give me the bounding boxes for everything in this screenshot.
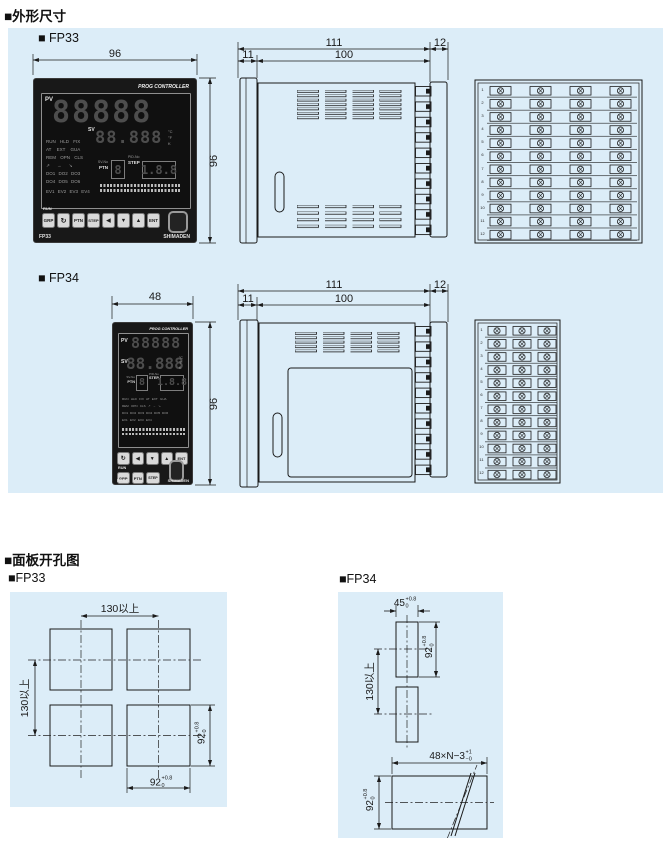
fp33-bezel-dim: 11: [242, 49, 253, 61]
vertical-pitch-dim: 130以上: [364, 662, 376, 701]
ptn-readout: 8: [136, 375, 148, 391]
break-line: [455, 773, 475, 836]
step-button: STEP: [146, 472, 160, 484]
terminal-row-number: 3: [480, 353, 483, 358]
svg-text:0: 0: [371, 796, 377, 799]
svg-text:+0.8: +0.8: [363, 789, 369, 800]
terminal-row-number: 6: [480, 392, 483, 397]
terminal-row-number: 2: [481, 100, 484, 105]
svg-text:+0.8: +0.8: [162, 776, 173, 782]
terminal-row-number: 4: [480, 366, 483, 371]
fp34-vent-top: [295, 332, 401, 354]
down-arrow-button: ▼: [117, 213, 130, 228]
svg-text:92: 92: [150, 778, 162, 789]
fp34-cutout-panel: 45 +0.8 0 92 +0.8 0 130以上: [338, 592, 503, 838]
section-title-dimensions: ■外形尺寸: [4, 5, 66, 25]
sv-readout: 88.888: [95, 130, 162, 147]
fp33-depth-total-dim: 111: [326, 37, 343, 49]
fp34-cutout-dimensions: 45 +0.8 0 92 +0.8 0 130以上: [364, 597, 440, 715]
terminal-row-number: 11: [480, 218, 485, 223]
dimensions-panel: ■ FP33 ■ FP34: [8, 28, 663, 493]
svg-text:0: 0: [162, 783, 165, 789]
fp33-vent-bottom: [297, 205, 403, 231]
terminal-row-number: 11: [479, 457, 484, 462]
unit-f: °F: [168, 136, 172, 140]
fp33-side-bezel: [240, 78, 257, 243]
fp34-side-bezel: [240, 320, 258, 487]
status-row-arrows: ↗ → ↘: [46, 164, 73, 169]
bargraph-row: [122, 428, 186, 431]
fp33-terminal-dim: 12: [434, 37, 446, 49]
fp34-terminal-grid: [485, 325, 557, 481]
terminal-row-number: 9: [481, 192, 484, 197]
terminal-row-number: 8: [481, 179, 484, 184]
left-arrow-button: ◀: [132, 452, 145, 465]
ptn-label: PTN: [86, 166, 108, 171]
status-row: AT EXT GUA: [46, 148, 80, 153]
fp34-width-dim: 48: [149, 291, 161, 303]
unit-k: K: [168, 142, 171, 146]
fp34-gang-cutout: 48×N−3 +1 −0 92 +0.8 0: [363, 750, 494, 839]
fp33-width-dim: 96: [109, 48, 121, 60]
brand-text: PROG CONTROLLER: [149, 328, 188, 332]
terminal-row-number: 1: [481, 87, 484, 92]
sv-no-label: SV-No: [86, 161, 108, 165]
terminal-row-number: 2: [480, 340, 483, 345]
fp34-bezel-dim: 11: [242, 293, 253, 305]
terminal-row-number: 1: [480, 327, 483, 332]
bargraph-row: [100, 184, 180, 187]
grp-button: GRP: [42, 213, 55, 228]
terminal-row-number: 12: [480, 231, 485, 236]
brand-text: PROG CONTROLLER: [138, 85, 189, 90]
terminal-row-number: 5: [480, 379, 483, 384]
svg-text:+0.8: +0.8: [195, 722, 201, 733]
step-readout: 1.8.8: [160, 375, 184, 391]
maker-label: SHIMADEN: [168, 479, 189, 483]
fp34-height-dim: 96: [208, 398, 220, 410]
terminal-row-number: 6: [481, 152, 484, 157]
fp34-cutout-drawing: 45 +0.8 0 92 +0.8 0 130以上: [338, 592, 503, 838]
unit-c: °C: [179, 357, 183, 361]
fp33-cutout-label: ■FP33: [8, 571, 45, 585]
pid-no-label: PID-No: [128, 156, 139, 160]
terminal-row-number: 4: [481, 126, 484, 131]
fp33-cutout-panel: 130以上 130以上 92 +0.8 0 92 +0.8 0: [10, 592, 227, 807]
fp34-front-panel: PROG CONTROLLER PV 88888 SV 88.888 °C °F…: [112, 322, 193, 485]
fp33-case-dim: 100: [335, 49, 353, 61]
fp33-display: PV 88888 RUN HLD FIX AT EXT GUA REM OPN …: [41, 93, 191, 209]
svg-text:−0: −0: [466, 757, 472, 763]
fp34-depth-total-dim: 111: [326, 279, 343, 291]
ptn-readout: 8: [111, 160, 125, 179]
svg-text:45: 45: [394, 598, 406, 609]
ent-button: ENT: [147, 213, 160, 228]
status-row: RUN HLD FIX: [46, 140, 80, 145]
fp34-side-panel: [288, 368, 412, 477]
fp34-side-view: 111 12 11 100: [238, 279, 448, 487]
status-row: EV1 EV2 EV3 EV4: [122, 419, 152, 422]
fp33-vent-top: [297, 90, 403, 120]
step-button: STEP: [87, 213, 100, 228]
model-label: FP34: [117, 479, 127, 483]
fp34-terminal-dim: 12: [434, 279, 446, 291]
svg-text:0: 0: [430, 643, 436, 646]
fp33-side-slot: [275, 172, 284, 212]
sv-label: SV: [88, 128, 95, 133]
terminal-row-number: 7: [481, 166, 484, 171]
fp33-side-view: 111 12 11 100: [238, 37, 448, 243]
maker-label: SHIMADEN: [163, 235, 190, 240]
left-arrow-button: ◀: [102, 213, 115, 228]
ptn-label: PTN: [121, 381, 135, 385]
terminal-row-number: 10: [480, 205, 485, 210]
status-row: REM OPN CLS ↗ → ↘: [122, 405, 161, 408]
sv-no-label: SV-No: [121, 376, 135, 379]
svg-text:0: 0: [202, 729, 208, 732]
status-row: REM OPN CLS: [46, 156, 83, 161]
fp34-side-slot: [273, 413, 282, 457]
fp34-case-dim: 100: [335, 293, 353, 305]
vertical-pitch-dim: 130以上: [19, 679, 31, 718]
fp33-front-panel: PROG CONTROLLER PV 88888 RUN HLD FIX AT …: [33, 78, 197, 243]
up-arrow-button: ▲: [132, 213, 145, 228]
pv-readout: 88888: [52, 98, 152, 128]
bargraph-row: [122, 433, 186, 436]
fp34-display: PV 88888 SV 88.888 °C °F K SV-No PTN 8 P…: [118, 333, 189, 448]
section-title-cutout: ■面板开孔图: [4, 549, 80, 569]
terminal-row-number: 3: [481, 113, 484, 118]
terminal-row-number: 8: [480, 418, 483, 423]
svg-text:92: 92: [197, 733, 208, 745]
svg-text:48×N−3: 48×N−3: [429, 751, 465, 762]
gang-height-dim: 92 +0.8 0: [363, 789, 377, 811]
terminal-row-number: 5: [481, 139, 484, 144]
unit-f: °F: [179, 362, 183, 366]
status-row: DO1 DO2 DO3: [46, 172, 80, 177]
terminal-row-number: 9: [480, 431, 483, 436]
run-label: RUN: [118, 467, 126, 471]
bargraph-row: [100, 189, 180, 192]
fp33-cutout-dimensions: 130以上 130以上 92 +0.8 0 92 +0.8 0: [19, 603, 215, 793]
fp34-terminal-cover: [430, 322, 447, 477]
svg-text:+0.8: +0.8: [406, 597, 417, 603]
fp33-cutout-holes: [28, 620, 206, 779]
gang-width-dim: 48×N−3 +1 −0: [429, 750, 471, 763]
latch-slot: [168, 211, 188, 233]
status-row: DO1 DO2 DO3 DO4 DO5 DO6: [122, 412, 168, 415]
loop-button: ↻: [117, 452, 130, 465]
horizontal-pitch-dim: 130以上: [101, 603, 140, 615]
hole-width-dim: 92 +0.8 0: [150, 776, 172, 790]
sv-readout: 88.888: [126, 356, 184, 372]
svg-text:92: 92: [365, 800, 376, 812]
ptn-button: PTN: [72, 213, 85, 228]
svg-text:92: 92: [424, 647, 435, 659]
svg-text:0: 0: [406, 604, 409, 610]
down-arrow-button: ▼: [146, 452, 159, 465]
fp34-cutout-holes: [374, 615, 434, 749]
status-row: RUN HLD FIX AT EXT GUA: [122, 398, 167, 401]
loop-button: ↻: [57, 213, 70, 228]
unit-c: °C: [168, 130, 173, 134]
run-label: RUN: [43, 207, 52, 211]
fp33-rear-view: 1 2 3 4 5 6 7 8 9 10 11 12: [475, 80, 642, 243]
status-row: EV1 EV2 EV3 EV4: [46, 190, 90, 195]
hole-width-dim: 45 +0.8 0: [394, 597, 416, 610]
fp33-cutout-drawing: 130以上 130以上 92 +0.8 0 92 +0.8 0: [10, 592, 227, 807]
model-label: FP33: [39, 235, 51, 240]
fp34-rear-view: 1 2 3 4 5 6 7 8 9 10 11 12: [475, 320, 560, 483]
fp34-cutout-label: ■FP34: [339, 572, 376, 586]
fp33-terminal-grid: [487, 85, 637, 242]
ptn-button: PTN: [132, 472, 145, 484]
pv-readout: 88888: [131, 336, 181, 351]
hole-height-dim: 92 +0.8 0: [422, 636, 436, 658]
step-label: STEP: [128, 161, 140, 166]
terminal-row-number: 7: [480, 405, 483, 410]
unit-k: K: [179, 367, 181, 371]
step-readout: 1.8.8: [142, 161, 176, 179]
status-row: DO4 DO5 DO6: [46, 180, 80, 185]
svg-text:+1: +1: [466, 750, 472, 756]
fp33-height-dim: 96: [208, 155, 220, 167]
terminal-row-number: 10: [479, 444, 484, 449]
datasheet-page: ■外形尺寸 ■ FP33 ■ FP34: [0, 0, 671, 849]
svg-text:+0.8: +0.8: [422, 636, 428, 647]
hole-height-dim: 92 +0.8 0: [195, 722, 209, 744]
fp33-terminal-cover: [430, 82, 447, 237]
terminal-row-number: 12: [479, 470, 484, 475]
pv-label: PV: [121, 339, 128, 344]
